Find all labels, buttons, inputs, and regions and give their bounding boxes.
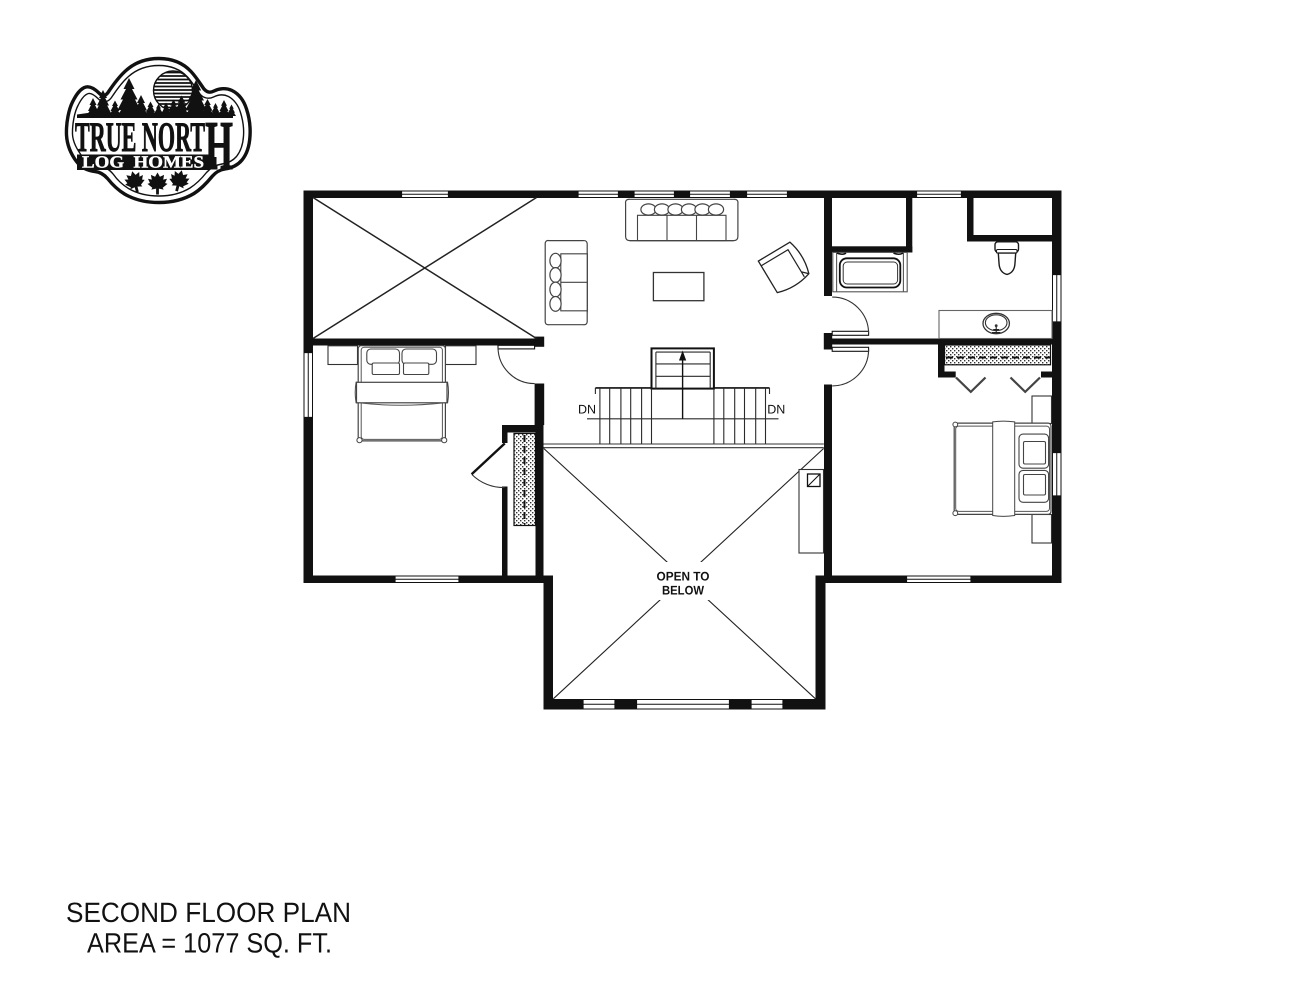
svg-text:DN: DN [578, 403, 596, 417]
svg-text:DN: DN [767, 403, 785, 417]
svg-text:LOG HOMES: LOG HOMES [82, 153, 204, 172]
svg-text:H: H [205, 108, 233, 185]
svg-text:AREA = 1077 SQ. FT.: AREA = 1077 SQ. FT. [87, 928, 332, 959]
svg-text:BELOW: BELOW [662, 584, 704, 598]
svg-text:SECOND FLOOR PLAN: SECOND FLOOR PLAN [66, 897, 351, 928]
svg-text:OPEN TO: OPEN TO [657, 570, 710, 584]
